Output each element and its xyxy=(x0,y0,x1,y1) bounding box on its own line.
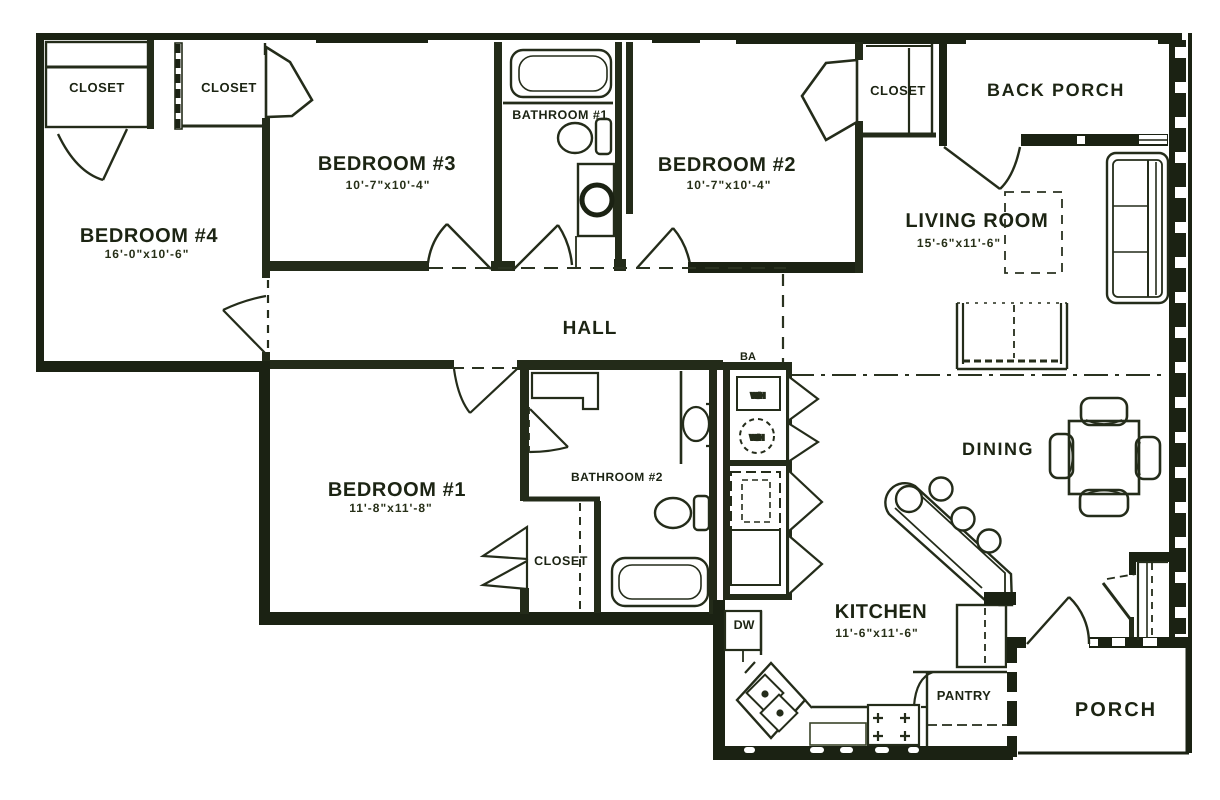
svg-text:BEDROOM #4: BEDROOM #4 xyxy=(80,225,219,247)
svg-text:BEDROOM #1: BEDROOM #1 xyxy=(328,479,466,501)
svg-text:BACK PORCH: BACK PORCH xyxy=(987,80,1125,100)
svg-text:DW: DW xyxy=(734,618,755,632)
svg-text:PANTRY: PANTRY xyxy=(937,688,991,703)
svg-text:10'-7"x10'-4": 10'-7"x10'-4" xyxy=(687,178,772,192)
svg-text:LIVING ROOM: LIVING ROOM xyxy=(905,210,1048,232)
svg-text:15'-6"x11'-6": 15'-6"x11'-6" xyxy=(917,236,1001,250)
svg-text:CLOSET: CLOSET xyxy=(870,83,926,98)
svg-text:BA: BA xyxy=(740,351,756,363)
svg-text:W/H: W/H xyxy=(750,433,765,442)
svg-text:11'-8"x11'-8": 11'-8"x11'-8" xyxy=(349,501,432,515)
svg-text:16'-0"x10'-6": 16'-0"x10'-6" xyxy=(105,247,190,261)
svg-text:BEDROOM #3: BEDROOM #3 xyxy=(318,153,456,175)
svg-text:CLOSET: CLOSET xyxy=(69,80,125,95)
svg-text:DINING: DINING xyxy=(962,439,1034,459)
svg-text:11'-6"x11'-6": 11'-6"x11'-6" xyxy=(835,626,918,640)
svg-text:HALL: HALL xyxy=(563,318,618,339)
svg-text:BATHROOM #1: BATHROOM #1 xyxy=(512,108,608,122)
svg-text:CLOSET: CLOSET xyxy=(534,554,588,568)
svg-text:KITCHEN: KITCHEN xyxy=(835,601,927,623)
svg-text:CLOSET: CLOSET xyxy=(201,80,257,95)
svg-text:PORCH: PORCH xyxy=(1075,699,1157,721)
svg-text:BATHROOM #2: BATHROOM #2 xyxy=(571,470,663,484)
svg-text:W/H: W/H xyxy=(751,391,766,400)
svg-text:BEDROOM #2: BEDROOM #2 xyxy=(658,154,796,176)
svg-text:10'-7"x10'-4": 10'-7"x10'-4" xyxy=(346,178,431,192)
